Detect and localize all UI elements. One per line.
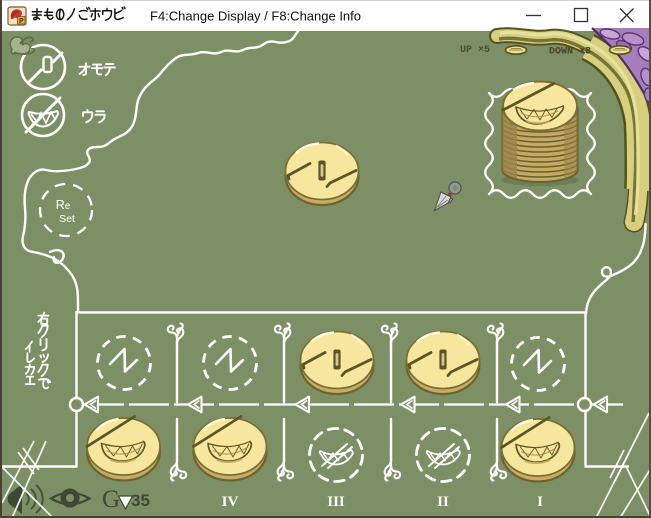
svg-text:Set: Set (59, 213, 75, 225)
svg-text:DOWN ×8: DOWN ×8 (549, 47, 591, 58)
svg-text:I: I (537, 494, 543, 510)
svg-text:II: II (437, 494, 449, 510)
svg-text:UP ×5: UP ×5 (460, 45, 490, 56)
svg-text:IV: IV (222, 494, 239, 510)
svg-text:35: 35 (131, 491, 150, 510)
svg-text:F4:Change Display / F8:Change: F4:Change Display / F8:Change Info (150, 9, 361, 24)
svg-text:P: P (19, 18, 24, 25)
svg-text:G: G (102, 486, 120, 513)
svg-text:III: III (327, 494, 345, 510)
svg-text:Re: Re (56, 198, 71, 212)
